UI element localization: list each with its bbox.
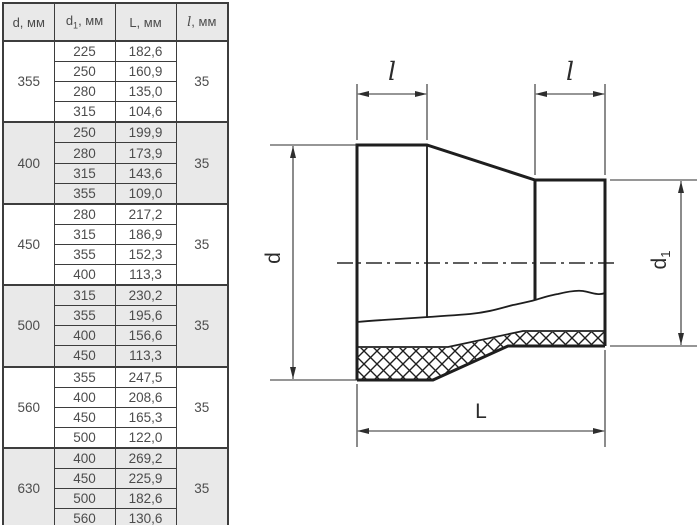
label-d1: d1 bbox=[648, 251, 673, 270]
arrow-left-icon bbox=[535, 91, 547, 97]
arrow-left-icon bbox=[357, 91, 369, 97]
arrow-up-icon bbox=[290, 146, 296, 158]
arrow-down-icon bbox=[290, 367, 296, 379]
arrow-down-icon bbox=[678, 333, 684, 345]
arrow-left-icon bbox=[357, 428, 369, 434]
reducer-drawing: d d1 l l L bbox=[0, 0, 700, 525]
arrow-up-icon bbox=[678, 181, 684, 193]
label-l-left: l bbox=[388, 57, 396, 86]
arrow-right-icon bbox=[593, 91, 605, 97]
break-line bbox=[357, 291, 605, 322]
label-d: d bbox=[262, 252, 285, 264]
arrow-right-icon bbox=[593, 428, 605, 434]
label-L: L bbox=[475, 400, 487, 423]
label-l-right: l bbox=[566, 57, 574, 86]
arrow-right-icon bbox=[415, 91, 427, 97]
page: d, мм d1, мм L, мм l, мм 355225182,635 2… bbox=[0, 0, 700, 525]
